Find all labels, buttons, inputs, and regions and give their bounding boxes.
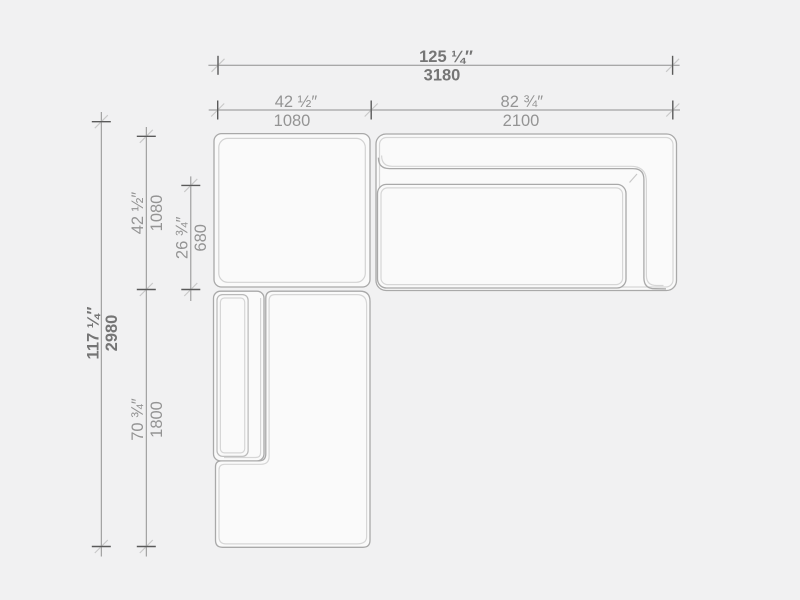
svg-text:125 ¼″: 125 ¼″ — [419, 48, 473, 66]
svg-text:1080: 1080 — [274, 112, 311, 130]
svg-text:42 ½″: 42 ½″ — [129, 192, 147, 235]
svg-text:2980: 2980 — [103, 315, 121, 352]
svg-text:82 ¾″: 82 ¾″ — [501, 93, 544, 111]
svg-text:26 ¾″: 26 ¾″ — [174, 216, 192, 259]
svg-text:1800: 1800 — [148, 401, 166, 438]
svg-text:3180: 3180 — [424, 66, 461, 84]
svg-text:2100: 2100 — [503, 112, 540, 130]
svg-text:70 ¾″: 70 ¾″ — [129, 398, 147, 441]
svg-text:117 ¼″: 117 ¼″ — [84, 306, 102, 359]
svg-text:1080: 1080 — [148, 195, 166, 232]
svg-text:680: 680 — [192, 224, 210, 252]
svg-text:42 ½″: 42 ½″ — [275, 93, 318, 111]
